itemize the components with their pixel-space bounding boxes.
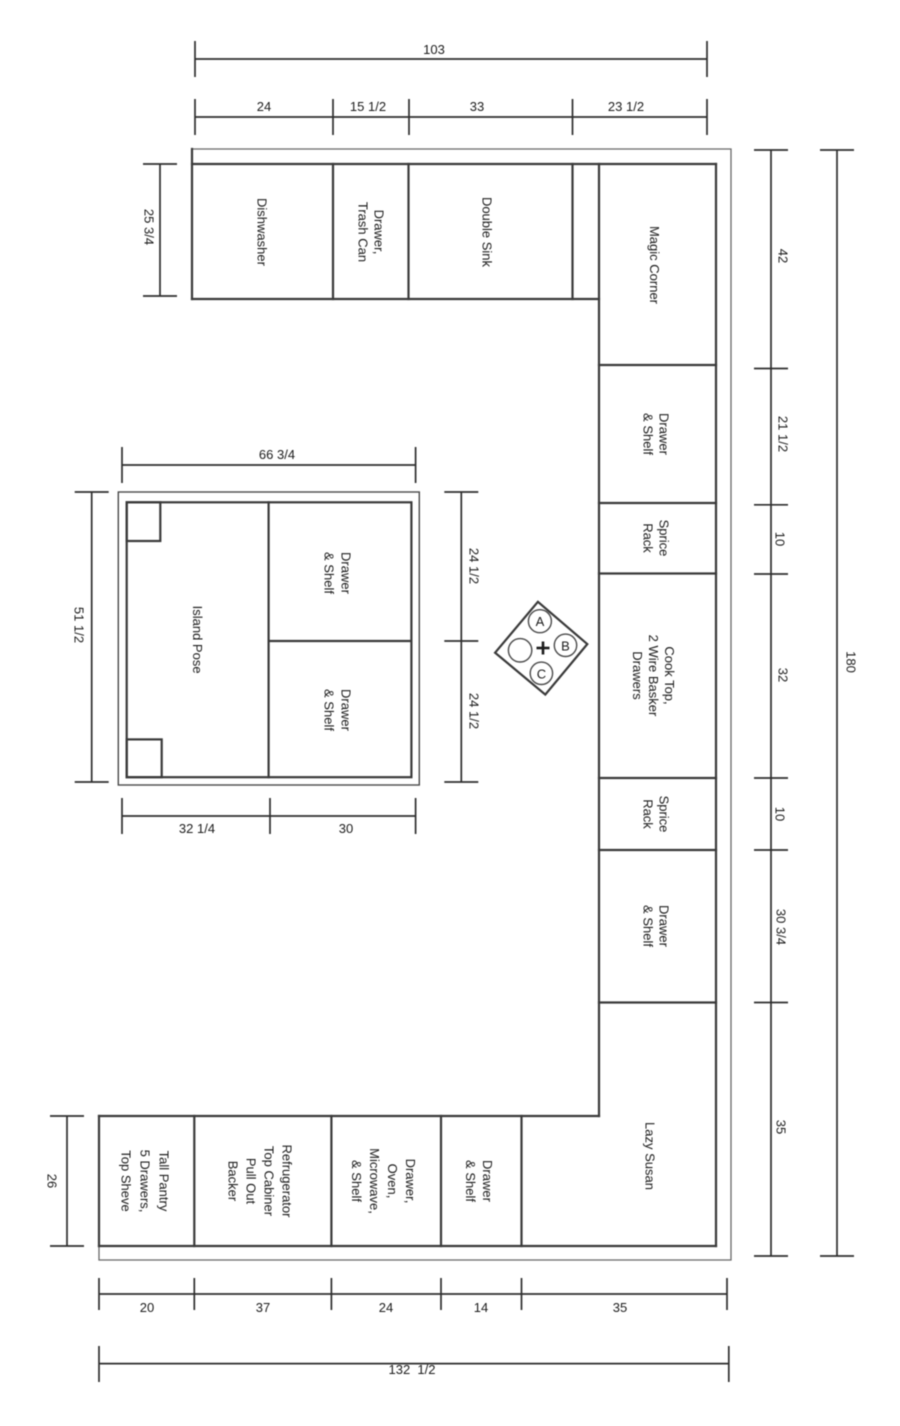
svg-text:23 1/2: 23 1/2 [608,99,644,114]
svg-text:24 1/2: 24 1/2 [467,693,482,729]
svg-text:Drawer: Drawer [338,689,353,732]
svg-text:A: A [536,614,545,629]
svg-text:26: 26 [45,1174,60,1188]
svg-text:24: 24 [379,1300,393,1315]
svg-text:Drawers: Drawers [630,651,645,700]
svg-text:21 1/2: 21 1/2 [776,416,791,452]
svg-text:& Shelf: & Shelf [349,1160,364,1202]
svg-text:180: 180 [844,651,859,673]
svg-text:20: 20 [140,1300,154,1315]
svg-text:Rack: Rack [641,523,656,553]
svg-text:Sprice: Sprice [657,520,672,557]
svg-text:24: 24 [257,99,271,114]
svg-text:132 1/2: 132 1/2 [389,1362,436,1377]
svg-text:103: 103 [423,42,445,57]
svg-text:Drawer,: Drawer, [403,1159,418,1204]
svg-text:Drawer,: Drawer, [372,210,387,255]
svg-text:Drawer: Drawer [338,552,353,595]
svg-text:5 Drawers,: 5 Drawers, [137,1150,152,1213]
svg-text:Top Cabiner: Top Cabiner [261,1146,276,1217]
svg-text:Trash Can: Trash Can [356,202,371,262]
svg-text:32 1/4: 32 1/4 [179,821,215,836]
svg-text:Tall Pantry: Tall Pantry [156,1151,171,1212]
svg-text:32: 32 [776,668,791,682]
svg-text:Magic Corner: Magic Corner [647,226,662,305]
svg-text:Cook Top,: Cook Top, [662,646,677,704]
svg-text:Oven,: Oven, [385,1164,400,1199]
svg-text:& Shelf: & Shelf [463,1160,478,1202]
svg-text:66 3/4: 66 3/4 [259,447,295,462]
svg-text:14: 14 [474,1300,488,1315]
svg-text:37: 37 [256,1300,270,1315]
svg-text:Drawer: Drawer [480,1160,495,1203]
svg-text:10: 10 [773,532,788,546]
svg-text:Double Sink: Double Sink [480,197,495,268]
svg-text:Top Sheve: Top Sheve [118,1150,133,1211]
svg-text:Drawer: Drawer [657,413,672,456]
svg-text:& Shelf: & Shelf [321,689,336,731]
svg-text:B: B [561,638,570,653]
svg-text:51 1/2: 51 1/2 [72,607,87,643]
svg-text:Dishwasher: Dishwasher [255,198,270,267]
svg-text:35: 35 [613,1300,627,1315]
svg-text:35: 35 [774,1120,789,1134]
svg-text:& Shelf: & Shelf [321,552,336,594]
svg-text:25 3/4: 25 3/4 [142,209,157,245]
svg-text:Drawer: Drawer [657,905,672,948]
svg-text:2 Wire Basker: 2 Wire Basker [646,635,661,717]
svg-text:42: 42 [776,249,791,263]
svg-text:C: C [537,666,546,681]
svg-text:10: 10 [773,807,788,821]
svg-text:Rack: Rack [641,799,656,829]
svg-text:Island Pose: Island Pose [190,606,205,674]
svg-text:Pull Out: Pull Out [243,1158,258,1205]
svg-text:30: 30 [339,821,353,836]
svg-text:24 1/2: 24 1/2 [467,548,482,584]
svg-text:& Shelf: & Shelf [641,905,656,947]
svg-text:Microwave,: Microwave, [367,1148,382,1214]
svg-text:Backer: Backer [225,1161,240,1202]
svg-text:33: 33 [470,99,484,114]
svg-text:Sprice: Sprice [657,796,672,833]
svg-text:& Shelf: & Shelf [641,413,656,455]
svg-text:15 1/2: 15 1/2 [350,99,386,114]
svg-text:Refrugerator: Refrugerator [279,1145,294,1219]
svg-text:Lazy Susan: Lazy Susan [643,1122,658,1190]
svg-text:30 3/4: 30 3/4 [774,909,789,945]
